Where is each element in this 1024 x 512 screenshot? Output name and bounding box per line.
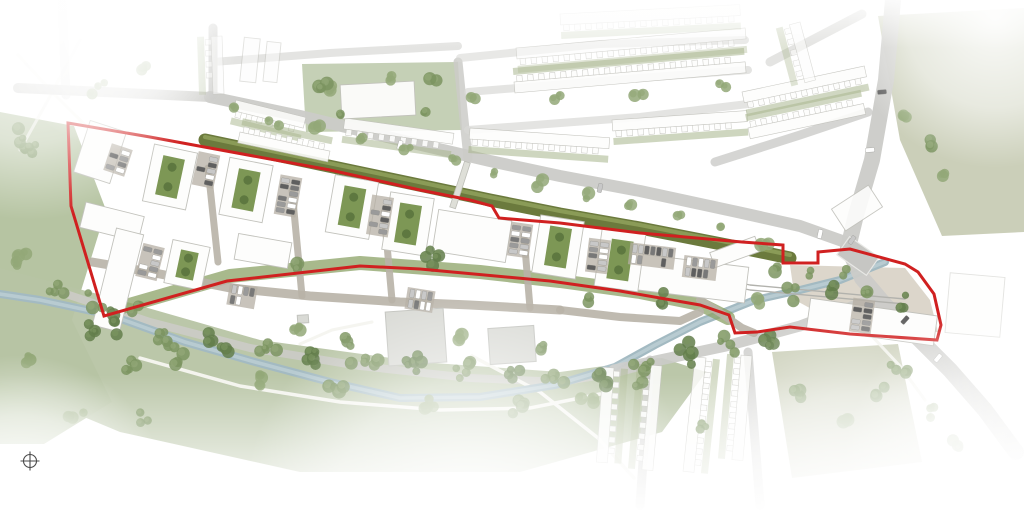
- tree-highlight: [400, 145, 406, 151]
- tree-highlight: [722, 83, 728, 89]
- tree-highlight: [87, 302, 94, 309]
- tree-cluster: [860, 285, 873, 298]
- tree-highlight: [204, 328, 211, 335]
- tree-highlight: [550, 95, 556, 101]
- terrace-tooth: [796, 70, 803, 77]
- terrace-tooth: [516, 142, 522, 148]
- parked-car: [588, 253, 597, 259]
- terrace-tooth: [705, 361, 712, 367]
- tree-highlight: [54, 281, 59, 286]
- terrace-tooth: [527, 143, 533, 149]
- terrace-tooth: [704, 124, 710, 130]
- terrace-tooth: [801, 90, 808, 97]
- tree-highlight: [122, 366, 128, 372]
- terrace-tooth: [571, 146, 577, 152]
- terrace-tooth: [560, 145, 566, 151]
- parked-car: [519, 250, 528, 256]
- parking-row: [585, 238, 611, 274]
- terrace-tooth: [367, 132, 373, 139]
- terrace-tooth: [235, 111, 242, 118]
- terrace-tooth: [630, 49, 636, 55]
- terrace-tooth: [714, 58, 720, 64]
- terrace-tooth: [516, 75, 522, 81]
- terrace-tooth: [692, 60, 698, 66]
- terrace-tooth: [538, 73, 544, 79]
- parked-car: [703, 269, 709, 278]
- terrace-tooth: [586, 52, 592, 58]
- tree-highlight: [807, 267, 811, 271]
- parked-car: [599, 254, 608, 260]
- terrace-tooth: [790, 92, 797, 99]
- parked-car: [864, 302, 873, 308]
- terrace-tooth: [494, 141, 500, 147]
- terrace-tooth: [593, 148, 599, 154]
- parked-car: [704, 259, 710, 268]
- terrace-tooth: [660, 127, 666, 133]
- terrace-tooth: [571, 70, 577, 76]
- terrace-tooth: [725, 123, 731, 129]
- terrace-tooth: [823, 85, 830, 92]
- parked-car: [600, 242, 609, 248]
- tree-highlight: [840, 272, 844, 276]
- tree-highlight: [314, 121, 321, 128]
- tree-highlight: [467, 93, 473, 99]
- parked-car: [509, 249, 518, 255]
- tree-highlight: [357, 136, 362, 141]
- parked-car: [698, 258, 704, 267]
- terrace-tooth: [542, 56, 548, 62]
- terrace-tooth: [520, 58, 526, 64]
- terrace-tooth: [615, 67, 621, 73]
- tree-highlight: [317, 84, 323, 90]
- terrace-tooth: [682, 126, 688, 132]
- terrace-tooth: [286, 136, 293, 143]
- tree-highlight: [156, 329, 162, 335]
- terrace-tooth: [803, 109, 810, 116]
- terrace-tooth: [275, 134, 282, 141]
- tree-highlight: [532, 182, 539, 189]
- parked-car: [522, 226, 531, 232]
- terrace-tooth: [670, 62, 676, 68]
- tree-highlight: [630, 90, 637, 97]
- tree-highlight: [388, 72, 393, 77]
- tree-highlight: [716, 80, 721, 85]
- terrace-tooth: [693, 125, 699, 131]
- building-slab: [340, 81, 416, 119]
- site-plan-svg: [0, 0, 1024, 512]
- tree-highlight: [59, 288, 65, 294]
- parked-car: [662, 248, 668, 257]
- masterplan-canvas: [0, 0, 1024, 512]
- tree-highlight: [162, 337, 168, 343]
- tree-highlight: [271, 345, 278, 352]
- terrace-tooth: [747, 101, 754, 108]
- tree-highlight: [262, 345, 266, 349]
- tree-highlight: [295, 325, 302, 332]
- tree-highlight: [829, 281, 835, 287]
- tree-highlight: [85, 290, 89, 294]
- terrace-tooth: [703, 59, 709, 65]
- tree-highlight: [433, 254, 438, 259]
- tree-highlight: [897, 303, 903, 309]
- terrace-tooth: [564, 54, 570, 60]
- parking-row: [682, 255, 718, 281]
- terrace-tooth: [560, 71, 566, 77]
- terrace-tooth: [725, 57, 731, 63]
- tree-highlight: [422, 108, 427, 113]
- tree-highlight: [678, 211, 683, 216]
- terrace-tooth: [593, 69, 599, 75]
- tree-highlight: [659, 288, 665, 294]
- terrace-tooth: [847, 100, 854, 107]
- terrace-tooth: [597, 52, 603, 58]
- parked-car: [631, 255, 637, 264]
- tree-highlight: [294, 265, 299, 270]
- terrace-tooth: [793, 60, 800, 67]
- parked-car: [521, 238, 530, 244]
- terrace-tooth: [531, 57, 537, 63]
- parked-car: [598, 260, 607, 266]
- tree-highlight: [232, 105, 236, 109]
- terrace-tooth: [627, 130, 633, 136]
- terrace-tooth: [307, 140, 314, 147]
- parked-car: [597, 266, 606, 272]
- tree-highlight: [770, 266, 777, 273]
- terrace-tooth: [750, 120, 757, 127]
- tree-highlight: [865, 290, 869, 294]
- tree-highlight: [131, 360, 138, 367]
- terrace-tooth: [836, 102, 843, 109]
- terrace-tooth: [715, 123, 721, 129]
- terrace-tooth: [318, 143, 325, 150]
- terrace-tooth: [638, 129, 644, 135]
- parked-car: [587, 265, 596, 271]
- parked-car: [685, 267, 691, 276]
- tree-highlight: [426, 246, 431, 251]
- terrace-tooth: [793, 111, 800, 118]
- tree-highlight: [111, 318, 117, 324]
- terrace-tooth: [582, 147, 588, 153]
- parked-car: [691, 268, 697, 277]
- terrace-tooth: [760, 118, 767, 125]
- terrace-tooth: [681, 61, 687, 67]
- terrace-tooth: [812, 87, 819, 94]
- parked-car: [650, 246, 656, 255]
- parking-row: [507, 222, 534, 259]
- tree-highlight: [112, 329, 119, 336]
- tree-highlight: [627, 200, 633, 206]
- terrace-tooth: [549, 72, 555, 78]
- terrace-tooth: [782, 114, 789, 121]
- terrace-tooth: [616, 130, 622, 136]
- terrace-tooth: [825, 104, 832, 111]
- terrace-tooth: [758, 99, 765, 106]
- terrace-tooth: [553, 55, 559, 61]
- tree-highlight: [14, 262, 19, 267]
- parked-car: [589, 247, 598, 253]
- terrace-tooth: [297, 138, 304, 145]
- terrace-tooth: [346, 129, 352, 136]
- tree-highlight: [92, 329, 96, 333]
- terrace-tooth: [483, 140, 489, 146]
- terrace-tooth: [640, 48, 646, 54]
- terrace-tooth: [527, 74, 533, 80]
- parked-car: [590, 241, 599, 247]
- parked-car: [638, 245, 644, 254]
- tree-highlight: [783, 283, 790, 290]
- tree-highlight: [647, 359, 651, 363]
- tree-highlight: [717, 224, 722, 229]
- terrace-tooth: [422, 140, 428, 147]
- terrace-tooth: [637, 65, 643, 71]
- parked-car: [686, 257, 692, 266]
- terrace-tooth: [608, 51, 614, 57]
- terrace-tooth: [649, 128, 655, 134]
- parked-car: [632, 244, 638, 253]
- parked-car: [510, 237, 519, 243]
- tree-highlight: [204, 337, 211, 344]
- tree-highlight: [275, 121, 281, 127]
- terrace-tooth: [254, 129, 261, 136]
- tree-highlight: [726, 340, 731, 345]
- tree-highlight: [583, 196, 587, 200]
- terrace-tooth: [264, 131, 271, 138]
- terrace-tooth: [790, 49, 797, 56]
- terrace-tooth: [505, 141, 511, 147]
- tree-highlight: [585, 293, 590, 298]
- terrace-tooth: [833, 83, 840, 90]
- terrace-tooth: [814, 107, 821, 114]
- parked-car: [644, 246, 650, 255]
- tree-highlight: [556, 92, 561, 97]
- tree-highlight: [306, 347, 312, 353]
- tree-highlight: [583, 188, 590, 195]
- tree-highlight: [427, 260, 434, 267]
- tree-highlight: [85, 320, 91, 326]
- tree-highlight: [264, 339, 270, 345]
- terrace-tooth: [575, 53, 581, 59]
- tree-highlight: [491, 172, 495, 176]
- tree-highlight: [658, 300, 664, 306]
- tree-highlight: [13, 250, 20, 257]
- parked-car: [661, 258, 667, 267]
- terrace-tooth: [243, 127, 250, 134]
- tree-highlight: [221, 343, 228, 350]
- terrace-tooth: [619, 50, 625, 56]
- parked-car: [697, 269, 703, 278]
- terrace-tooth: [844, 80, 851, 87]
- parked-car: [511, 231, 520, 237]
- tree-highlight: [757, 295, 761, 299]
- parked-car: [656, 247, 662, 256]
- tree-highlight: [688, 361, 693, 366]
- tree-highlight: [425, 73, 432, 80]
- parked-car: [509, 243, 518, 249]
- terrace-tooth: [604, 68, 610, 74]
- tree-highlight: [687, 347, 694, 354]
- tree-highlight: [178, 348, 185, 355]
- tree-highlight: [788, 296, 795, 303]
- tree-highlight: [938, 171, 944, 177]
- terrace-tooth: [671, 127, 677, 133]
- parked-car: [710, 260, 716, 269]
- terrace-tooth: [433, 142, 439, 149]
- tree-cluster: [229, 102, 239, 112]
- terrace-tooth: [411, 138, 417, 145]
- terrace-tooth: [769, 96, 776, 103]
- tree-highlight: [170, 343, 176, 349]
- parked-car: [599, 248, 608, 254]
- tree-highlight: [265, 117, 270, 122]
- terrace-tooth: [780, 94, 787, 101]
- tree-highlight: [255, 347, 261, 353]
- terrace-tooth: [582, 70, 588, 76]
- tree-highlight: [452, 156, 458, 162]
- terrace-tooth: [538, 144, 544, 150]
- tree-highlight: [903, 292, 907, 296]
- terrace-tooth: [771, 116, 778, 123]
- terrace-tooth: [378, 134, 384, 141]
- terrace-tooth: [472, 139, 478, 145]
- parked-car: [637, 255, 643, 264]
- tree-highlight: [675, 345, 682, 352]
- parked-car: [668, 249, 674, 258]
- tree-highlight: [718, 339, 722, 343]
- tree-highlight: [170, 359, 177, 366]
- sports-pitch: [297, 315, 309, 324]
- tree-highlight: [843, 266, 848, 271]
- tree-highlight: [719, 331, 726, 338]
- parked-car: [520, 244, 529, 250]
- parked-car: [512, 225, 521, 231]
- tree-highlight: [47, 288, 51, 292]
- tree-highlight: [21, 249, 28, 256]
- terrace-tooth: [659, 63, 665, 69]
- terrace-tooth: [648, 64, 654, 70]
- vehicle: [865, 147, 874, 152]
- terrace-tooth: [626, 66, 632, 72]
- tree-highlight: [683, 337, 690, 344]
- terrace-tooth: [389, 135, 395, 142]
- parked-car: [692, 258, 698, 267]
- tree-highlight: [338, 112, 342, 116]
- terrace-tooth: [549, 145, 555, 151]
- parked-car: [521, 232, 530, 238]
